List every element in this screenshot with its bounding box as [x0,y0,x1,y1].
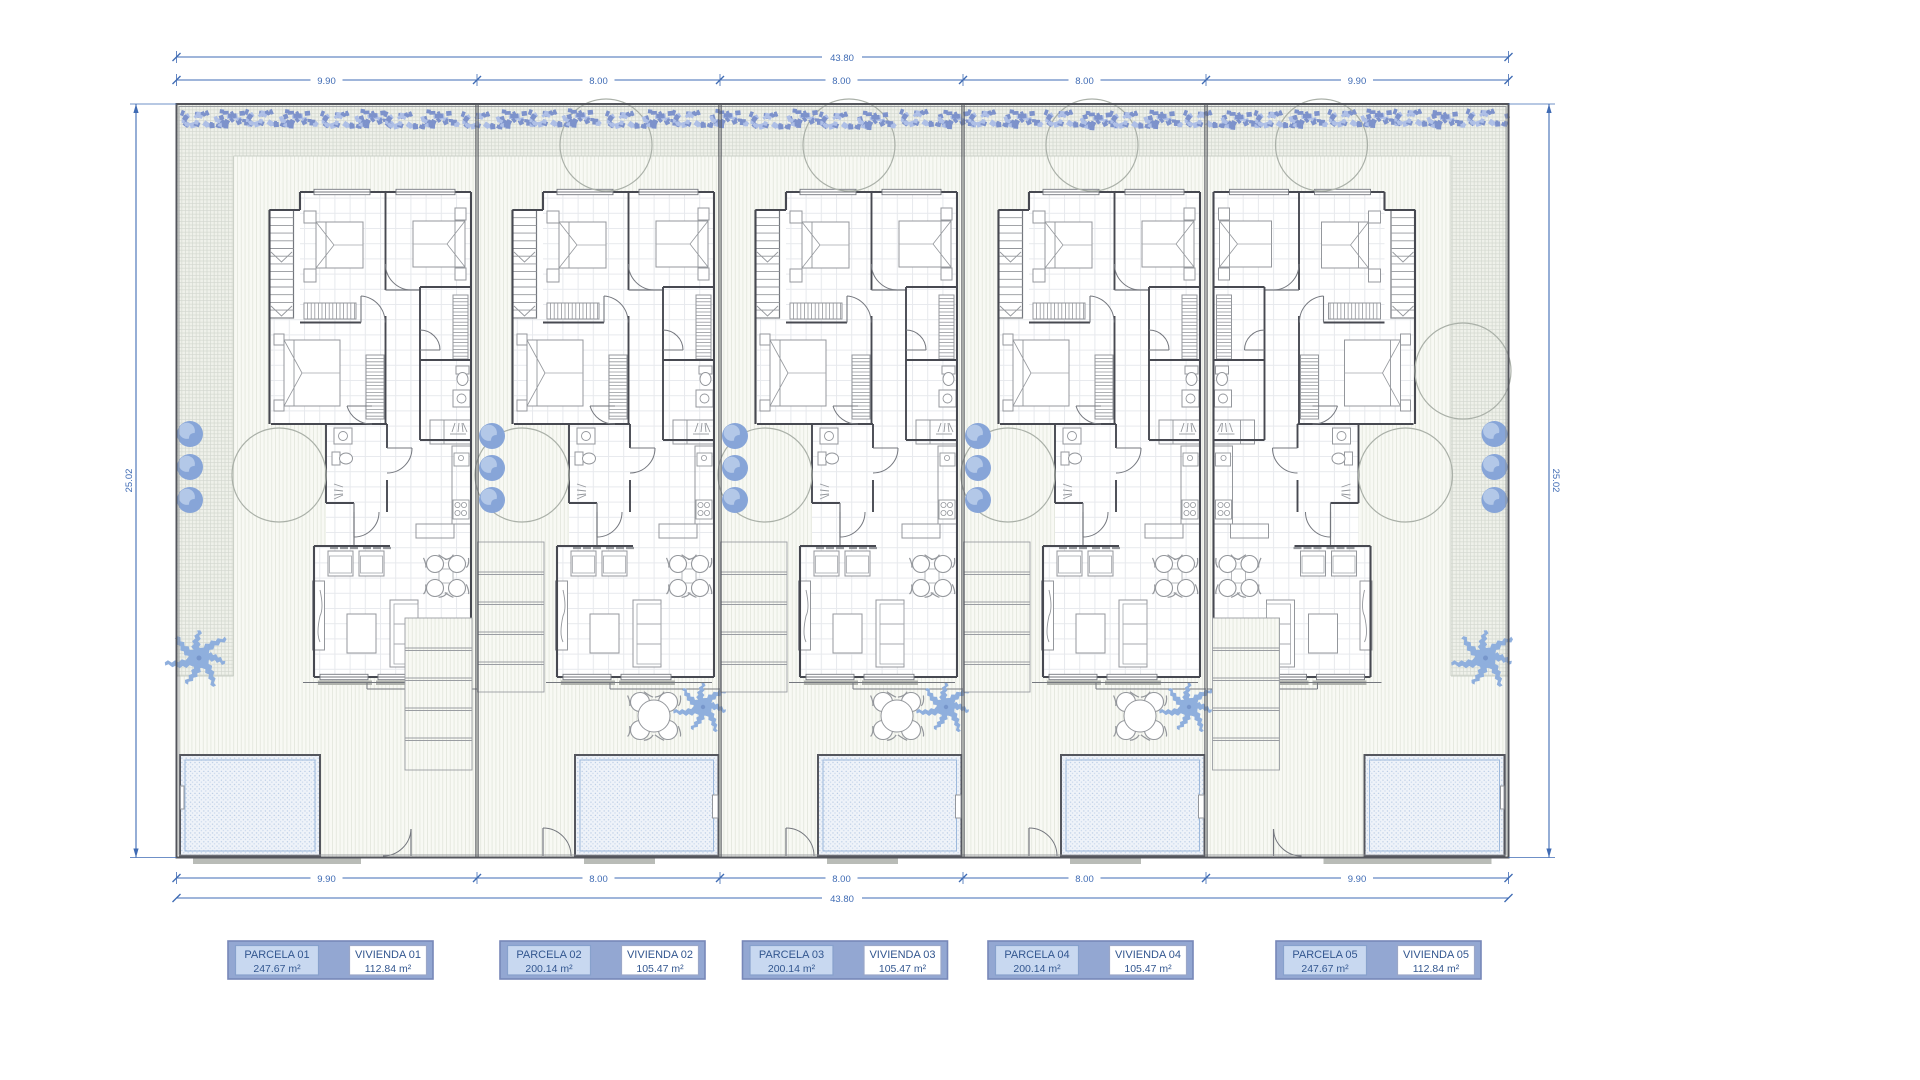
svg-text:9.90: 9.90 [1348,874,1367,885]
svg-text:105.47 m²: 105.47 m² [879,963,927,975]
svg-text:VIVIENDA 01: VIVIENDA 01 [355,949,421,961]
svg-text:200.14 m²: 200.14 m² [768,963,816,975]
svg-text:25.02: 25.02 [124,469,135,493]
svg-text:105.47 m²: 105.47 m² [1124,963,1172,975]
svg-text:43.80: 43.80 [830,894,854,905]
svg-text:9.90: 9.90 [1348,76,1367,87]
svg-text:25.02: 25.02 [1550,469,1561,493]
svg-text:112.84 m²: 112.84 m² [365,963,412,975]
svg-text:8.00: 8.00 [832,874,851,885]
svg-text:247.67 m²: 247.67 m² [253,963,301,975]
svg-text:200.14 m²: 200.14 m² [525,963,573,975]
svg-text:8.00: 8.00 [832,76,851,87]
svg-text:8.00: 8.00 [1075,874,1094,885]
svg-text:VIVIENDA 04: VIVIENDA 04 [1115,949,1181,961]
svg-text:PARCELA 01: PARCELA 01 [244,949,309,961]
svg-text:9.90: 9.90 [317,76,336,87]
svg-text:PARCELA 04: PARCELA 04 [1004,949,1069,961]
svg-text:PARCELA 02: PARCELA 02 [516,949,581,961]
svg-text:9.90: 9.90 [317,874,336,885]
svg-text:VIVIENDA 02: VIVIENDA 02 [627,949,693,961]
svg-text:VIVIENDA 05: VIVIENDA 05 [1403,949,1469,961]
svg-text:PARCELA 03: PARCELA 03 [759,949,824,961]
svg-text:8.00: 8.00 [589,76,608,87]
svg-text:105.47 m²: 105.47 m² [636,963,684,975]
svg-text:43.80: 43.80 [830,53,854,64]
svg-text:VIVIENDA 03: VIVIENDA 03 [869,949,935,961]
svg-text:8.00: 8.00 [1075,76,1094,87]
svg-text:112.84 m²: 112.84 m² [1413,963,1460,975]
svg-text:PARCELA 05: PARCELA 05 [1292,949,1357,961]
svg-text:8.00: 8.00 [589,874,608,885]
svg-text:247.67 m²: 247.67 m² [1301,963,1349,975]
svg-text:200.14 m²: 200.14 m² [1013,963,1061,975]
